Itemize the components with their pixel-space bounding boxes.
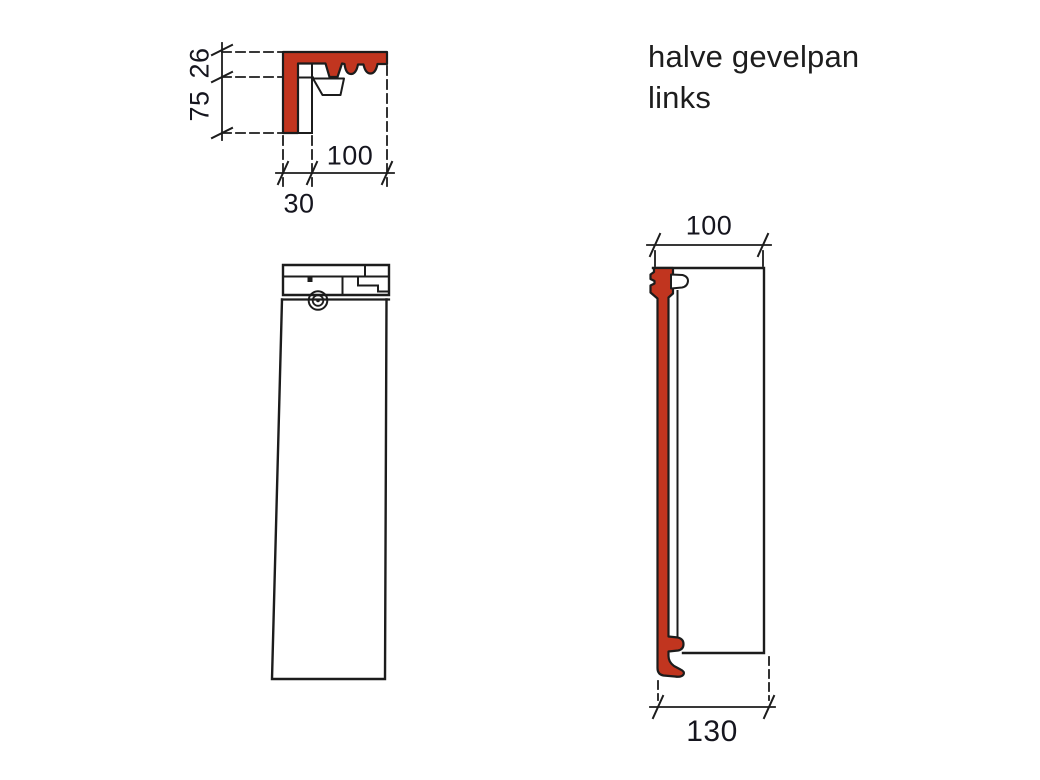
tile-body-outline <box>272 300 387 680</box>
section-inner-lines <box>297 64 313 134</box>
dim-label-26: 26 <box>185 47 216 78</box>
red-section-profile <box>283 52 387 133</box>
dim-label-30: 30 <box>283 189 314 220</box>
head-notch <box>308 276 313 282</box>
side-lug-pocket <box>671 275 688 289</box>
dim-label-130: 130 <box>686 715 738 749</box>
dim-label-100-detail: 100 <box>327 141 374 172</box>
red-side-profile <box>651 268 684 677</box>
top-ext-lines <box>655 251 763 266</box>
head-interlock-step <box>343 265 390 295</box>
drawing-title: halve gevelpan links <box>648 36 859 118</box>
technical-drawing <box>0 0 1040 780</box>
side-body-outline <box>653 268 764 653</box>
head-outline <box>283 265 389 295</box>
title-line-2: links <box>648 77 859 118</box>
section-lug-outline <box>313 79 344 96</box>
title-line-1: halve gevelpan <box>648 36 859 77</box>
nail-boss-dot <box>316 299 320 303</box>
side-view <box>647 234 775 718</box>
front-view <box>272 265 389 679</box>
dim-label-75: 75 <box>185 90 216 121</box>
dim-label-100-side: 100 <box>686 211 733 242</box>
drawing-page: halve gevelpan links 26 75 100 30 100 13… <box>0 0 1040 780</box>
